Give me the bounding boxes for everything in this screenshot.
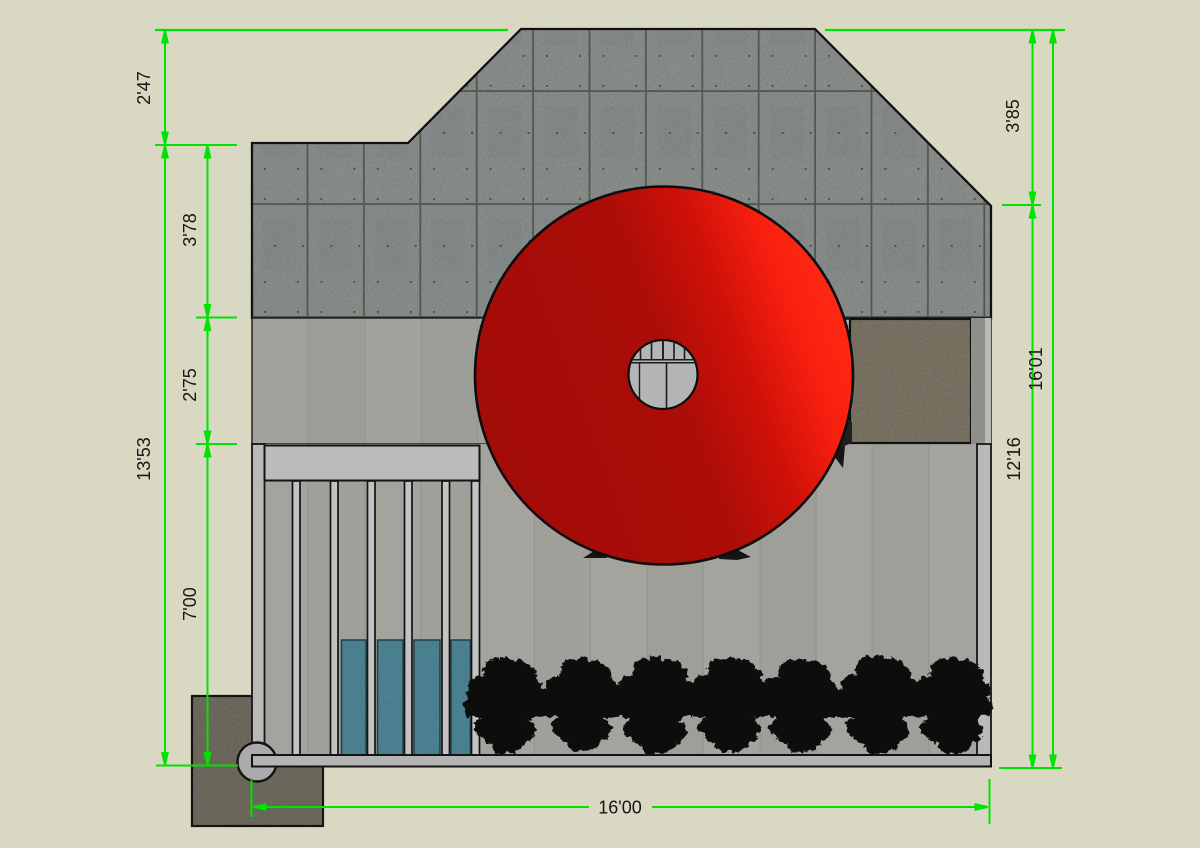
svg-text:2'47: 2'47 <box>134 71 154 104</box>
svg-text:12'16: 12'16 <box>1004 437 1024 480</box>
svg-text:13'53: 13'53 <box>134 437 154 480</box>
svg-text:7'00: 7'00 <box>180 587 200 620</box>
svg-text:16'01: 16'01 <box>1026 347 1046 390</box>
svg-text:3'85: 3'85 <box>1003 99 1023 132</box>
svg-text:2'75: 2'75 <box>180 368 200 401</box>
svg-text:16'00: 16'00 <box>598 798 641 818</box>
svg-text:3'78: 3'78 <box>180 213 200 246</box>
